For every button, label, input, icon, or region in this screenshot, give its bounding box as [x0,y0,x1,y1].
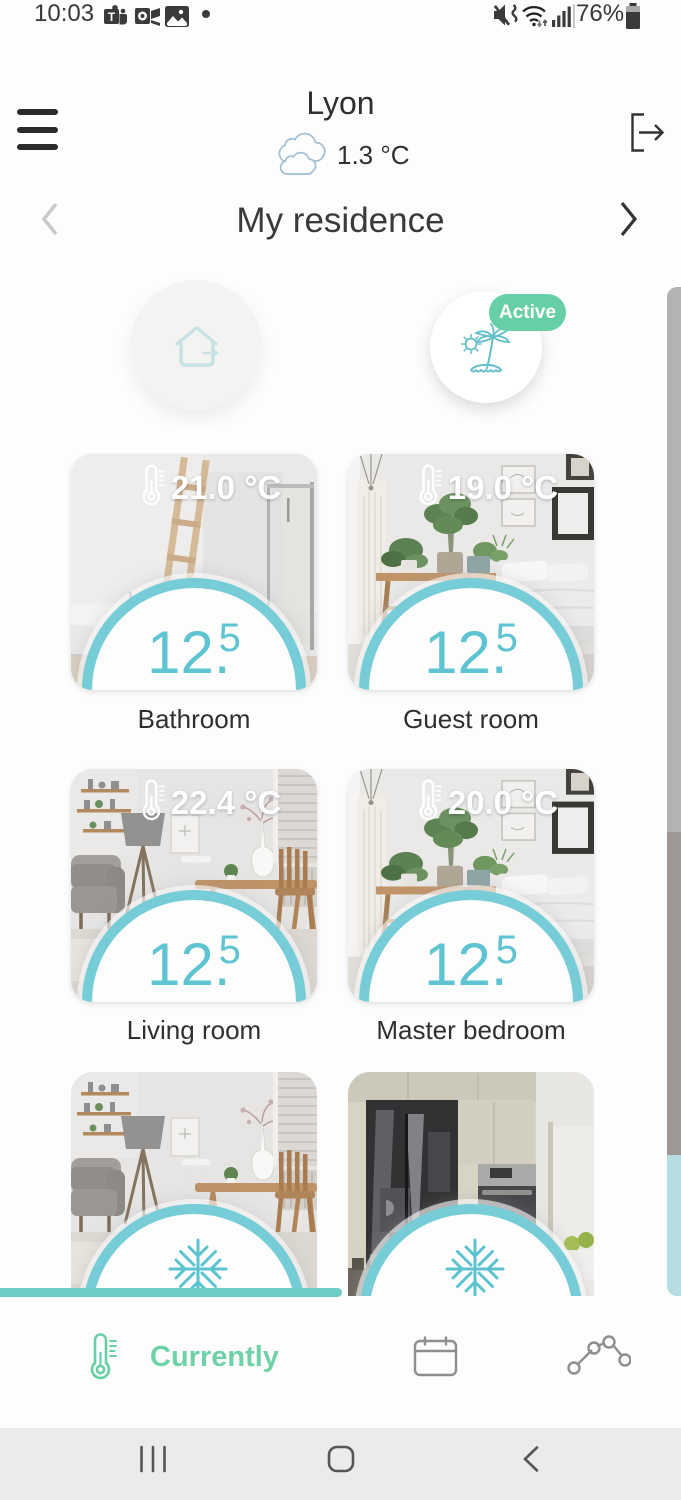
svg-text:T: T [108,10,116,24]
